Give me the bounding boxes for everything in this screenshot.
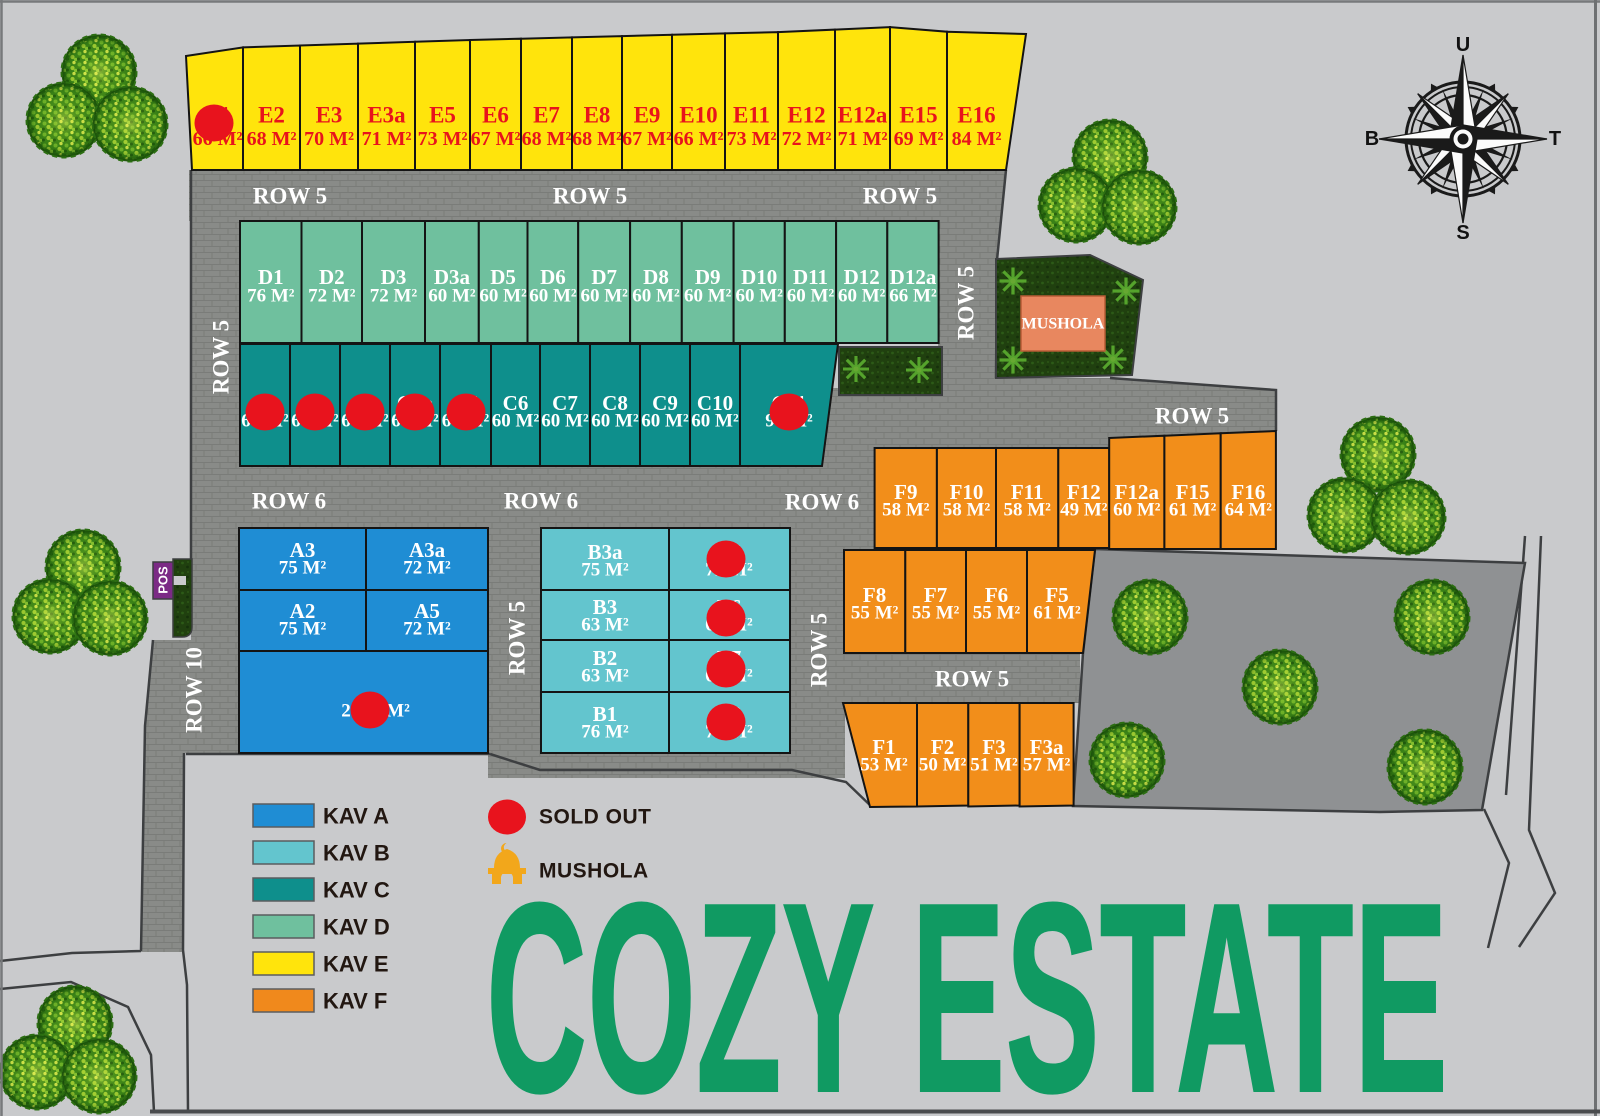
svg-text:ROW 5: ROW 5 — [954, 266, 979, 340]
svg-text:ROW 5: ROW 5 — [807, 613, 832, 687]
svg-text:60 M²: 60 M² — [1113, 500, 1161, 521]
svg-text:73 M²: 73 M² — [727, 128, 777, 150]
svg-text:60 M²: 60 M² — [428, 286, 476, 307]
svg-text:63 M²: 63 M² — [581, 615, 629, 636]
svg-text:POS: POS — [156, 566, 171, 594]
svg-text:E12a: E12a — [838, 103, 888, 128]
svg-text:66 M²: 66 M² — [889, 286, 937, 307]
svg-text:60 M²: 60 M² — [684, 286, 732, 307]
svg-text:KAV E: KAV E — [323, 952, 389, 977]
svg-text:E6: E6 — [482, 103, 509, 128]
svg-text:55 M²: 55 M² — [973, 603, 1021, 624]
svg-text:69 M²: 69 M² — [894, 128, 944, 150]
svg-text:51 M²: 51 M² — [970, 755, 1018, 776]
svg-text:72 M²: 72 M² — [782, 128, 832, 150]
svg-text:67 M²: 67 M² — [471, 128, 521, 150]
svg-text:68 M²: 68 M² — [572, 128, 622, 150]
svg-text:53 M²: 53 M² — [860, 755, 908, 776]
svg-text:E7: E7 — [533, 103, 560, 128]
svg-text:50 M²: 50 M² — [919, 755, 967, 776]
svg-text:E5: E5 — [429, 103, 456, 128]
svg-text:ROW 5: ROW 5 — [1155, 404, 1229, 429]
svg-text:58 M²: 58 M² — [943, 500, 991, 521]
svg-text:75 M²: 75 M² — [279, 619, 327, 640]
svg-text:72 M²: 72 M² — [308, 286, 356, 307]
svg-text:KAV F: KAV F — [323, 989, 387, 1014]
svg-text:63 M²: 63 M² — [581, 666, 629, 687]
svg-text:U: U — [1456, 34, 1470, 56]
svg-text:ROW 6: ROW 6 — [785, 490, 859, 515]
svg-text:60 M²: 60 M² — [581, 286, 629, 307]
svg-text:60 M²: 60 M² — [691, 411, 739, 432]
svg-text:61 M²: 61 M² — [1169, 500, 1217, 521]
svg-text:72 M²: 72 M² — [403, 619, 451, 640]
svg-text:ROW 5: ROW 5 — [505, 601, 530, 675]
svg-text:E3: E3 — [316, 103, 343, 128]
svg-text:76 M²: 76 M² — [581, 722, 629, 743]
svg-text:MUSHOLA: MUSHOLA — [1022, 316, 1105, 333]
svg-text:60 M²: 60 M² — [591, 411, 639, 432]
svg-text:B: B — [1365, 128, 1379, 150]
svg-text:60 M²: 60 M² — [632, 286, 680, 307]
svg-text:T: T — [1549, 128, 1561, 150]
svg-text:ESTATE: ESTATE — [911, 848, 1448, 1116]
svg-text:2: 2 — [341, 701, 351, 722]
svg-text:E3a: E3a — [367, 103, 406, 128]
svg-text:57 M²: 57 M² — [1023, 755, 1071, 776]
svg-text:E10: E10 — [679, 103, 717, 128]
svg-text:E11: E11 — [733, 103, 770, 128]
svg-text:60 M²: 60 M² — [492, 411, 540, 432]
svg-text:E9: E9 — [634, 103, 661, 128]
svg-text:KAV D: KAV D — [323, 915, 390, 940]
svg-text:58 M²: 58 M² — [1004, 500, 1052, 521]
svg-text:61 M²: 61 M² — [1033, 603, 1081, 624]
svg-text:60 M²: 60 M² — [541, 411, 589, 432]
svg-text:76 M²: 76 M² — [247, 286, 295, 307]
svg-text:67 M²: 67 M² — [622, 128, 672, 150]
svg-text:E8: E8 — [584, 103, 611, 128]
svg-text:M²: M² — [386, 701, 410, 722]
svg-text:73 M²: 73 M² — [418, 128, 468, 150]
svg-text:71 M²: 71 M² — [362, 128, 412, 150]
svg-text:COZY: COZY — [486, 848, 875, 1116]
svg-text:60 M²: 60 M² — [479, 286, 527, 307]
svg-text:ROW 5: ROW 5 — [553, 184, 627, 209]
svg-text:75 M²: 75 M² — [279, 558, 327, 579]
svg-text:70 M²: 70 M² — [304, 128, 354, 150]
svg-text:55 M²: 55 M² — [912, 603, 960, 624]
svg-text:71 M²: 71 M² — [838, 128, 888, 150]
svg-text:72 M²: 72 M² — [403, 558, 451, 579]
svg-text:55 M²: 55 M² — [851, 603, 899, 624]
svg-text:64 M²: 64 M² — [1225, 500, 1273, 521]
svg-text:68 M²: 68 M² — [522, 128, 572, 150]
svg-text:ROW 6: ROW 6 — [504, 489, 578, 514]
svg-text:49 M²: 49 M² — [1060, 500, 1108, 521]
svg-text:SOLD OUT: SOLD OUT — [539, 806, 652, 829]
svg-text:60 M²: 60 M² — [736, 286, 784, 307]
svg-text:60 M²: 60 M² — [529, 286, 577, 307]
svg-text:60 M²: 60 M² — [787, 286, 835, 307]
svg-text:ROW 5: ROW 5 — [863, 184, 937, 209]
svg-text:ROW 5: ROW 5 — [935, 667, 1009, 692]
svg-text:72 M²: 72 M² — [370, 286, 418, 307]
svg-text:60 M²: 60 M² — [838, 286, 886, 307]
svg-text:84 M²: 84 M² — [952, 128, 1002, 150]
svg-text:S: S — [1456, 222, 1469, 244]
svg-text:ROW 5: ROW 5 — [209, 320, 234, 394]
svg-text:E12: E12 — [787, 103, 825, 128]
svg-text:58 M²: 58 M² — [882, 500, 930, 521]
svg-text:68 M²: 68 M² — [247, 128, 297, 150]
svg-text:ROW 10: ROW 10 — [182, 647, 207, 733]
svg-text:60 M²: 60 M² — [641, 411, 689, 432]
svg-text:75 M²: 75 M² — [581, 560, 629, 581]
svg-text:ROW 6: ROW 6 — [252, 489, 326, 514]
svg-text:ROW 5: ROW 5 — [253, 184, 327, 209]
svg-text:E2: E2 — [258, 103, 285, 128]
svg-text:E15: E15 — [899, 103, 937, 128]
svg-text:KAV A: KAV A — [323, 804, 389, 829]
svg-text:KAV B: KAV B — [323, 841, 390, 866]
svg-text:66 M²: 66 M² — [674, 128, 724, 150]
svg-text:E16: E16 — [957, 103, 995, 128]
svg-text:KAV C: KAV C — [323, 878, 390, 903]
